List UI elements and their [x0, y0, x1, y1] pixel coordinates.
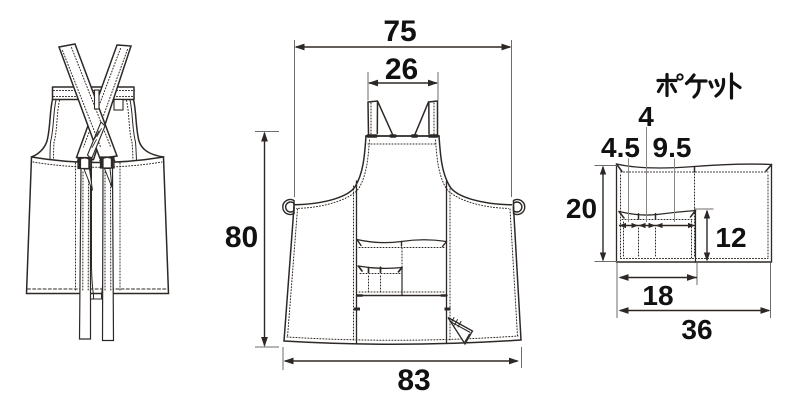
svg-text:36: 36: [681, 314, 712, 345]
svg-text:20: 20: [566, 193, 597, 224]
svg-text:12: 12: [715, 222, 746, 253]
svg-text:18: 18: [642, 280, 673, 311]
svg-text:26: 26: [385, 53, 418, 86]
svg-text:4: 4: [638, 101, 654, 132]
svg-text:4.5: 4.5: [601, 132, 640, 163]
svg-text:80: 80: [225, 221, 258, 254]
svg-text:9.5: 9.5: [653, 132, 692, 163]
svg-text:75: 75: [383, 15, 416, 48]
svg-text:83: 83: [397, 364, 430, 397]
